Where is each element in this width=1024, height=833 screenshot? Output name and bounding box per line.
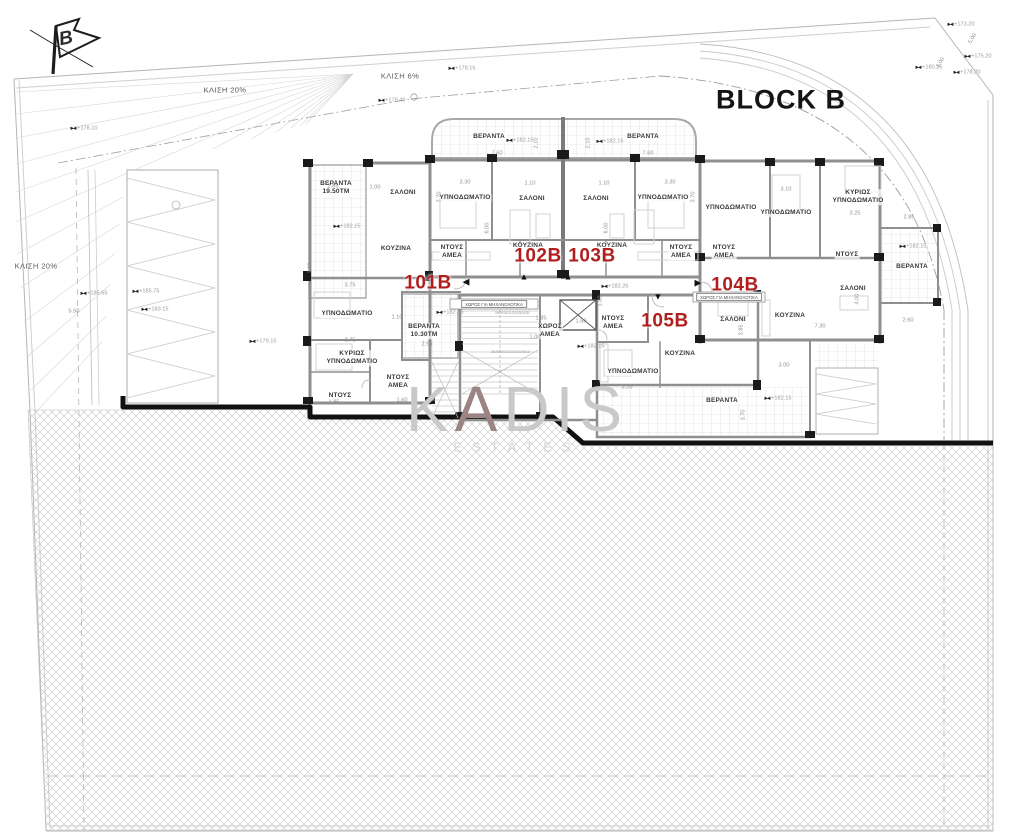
watermark-subtitle: ESTATES	[453, 440, 580, 455]
hatch-area	[28, 407, 993, 830]
elevator	[560, 300, 596, 330]
driveway-ramp	[127, 170, 218, 403]
floor-plan-page: KADIS ESTATES BLOCK B B ΒΕΡΑΝΤΑΒΕΡΑΝΤΑΒΕ…	[0, 0, 1024, 833]
block-title: BLOCK B	[716, 85, 846, 116]
watermark-logo: KADIS	[406, 377, 628, 441]
exterior-ramp	[816, 368, 878, 434]
